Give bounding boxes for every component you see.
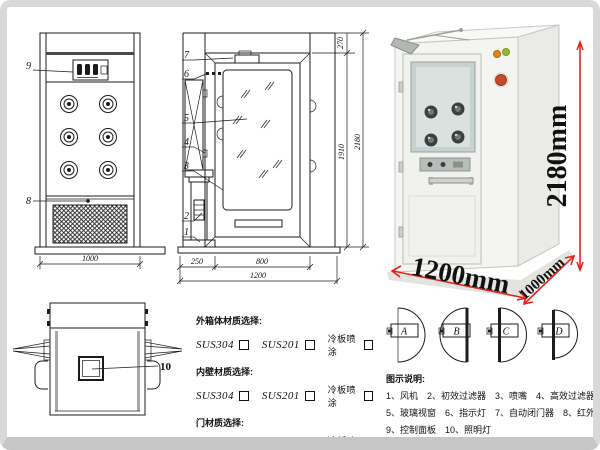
fan-section: [185, 80, 207, 170]
door-option-label: D: [554, 327, 563, 338]
door-option-label: B: [453, 327, 459, 338]
spec-sheet: 9 8 1000: [0, 0, 600, 450]
front-view-drawing: 9 8 1000: [22, 28, 182, 276]
checkbox[interactable]: [364, 442, 373, 450]
legend-item: 4、高效过滤器: [536, 389, 595, 402]
header-strip: [46, 52, 134, 55]
material-option-label: 冷板喷涂: [328, 434, 360, 450]
door-option-label: C: [503, 327, 510, 338]
wall-section: [137, 331, 140, 411]
material-option-label: SUS304: [196, 339, 234, 351]
dimension-widths: 250 800 1200: [177, 256, 340, 284]
glass-hatching: [233, 82, 282, 178]
checkbox[interactable]: [305, 442, 315, 450]
dimension-label: 2180: [353, 134, 362, 150]
side-wing-right: [145, 340, 182, 360]
return-grille: [53, 205, 127, 243]
checkbox[interactable]: [364, 340, 373, 350]
control-panel: [73, 60, 108, 80]
hinge: [399, 227, 403, 237]
hinge: [399, 162, 403, 172]
side-wing-left: [13, 340, 50, 360]
callout-label: 6: [184, 69, 189, 80]
top-view-drawing: 10: [8, 295, 176, 445]
door: [205, 51, 316, 247]
dimension-label: 1000: [82, 254, 98, 263]
material-option-label: SUS304: [196, 441, 234, 450]
legend-item: 8、红外线感应器: [563, 406, 600, 419]
material-group-title: 门材质选择:: [196, 416, 386, 429]
checkbox[interactable]: [239, 340, 249, 350]
orange-light: [494, 51, 501, 58]
callout-label: 8: [26, 196, 31, 207]
material-selection: 外箱体材质选择: SUS304 SUS201 冷板喷涂 内壁材质选择: SUS3…: [196, 314, 386, 450]
dimension-width: 1000: [37, 254, 143, 269]
material-options-row: SUS304 SUS201 冷板喷涂: [196, 434, 386, 450]
dimension-heights: 270 1910 2180: [312, 30, 369, 250]
material-group-title: 外箱体材质选择:: [196, 314, 386, 327]
cabinet-3d: [391, 25, 559, 272]
legend: 图示说明: 1、风机 2、初效过滤器 3、喷嘴 4、高效过滤器 5、玻璃视窗 6…: [386, 372, 596, 440]
material-option-label: 冷板喷涂: [328, 332, 360, 358]
door-option-d: D: [536, 304, 578, 366]
wall-section: [55, 331, 58, 411]
material-option-label: SUS201: [262, 441, 300, 450]
glass-window: [223, 70, 292, 210]
door-option-a: A: [386, 304, 428, 366]
callout-label: 4: [184, 137, 189, 148]
legend-line: 5、玻璃视窗 6、指示灯 7、自动闭门器 8、红外线感应器: [386, 406, 596, 419]
material-option-label: SUS201: [262, 390, 300, 402]
dimension-label: 270: [336, 37, 345, 49]
legend-title: 图示说明:: [386, 372, 596, 385]
door-handle-right: [147, 361, 160, 389]
checkbox[interactable]: [239, 442, 249, 450]
callout-control-panel: 9: [26, 61, 73, 72]
base: [35, 247, 165, 254]
door-handle: [235, 220, 282, 227]
product-photo: 2180mm 1200mm 1000mm: [373, 12, 590, 304]
door-handle-left: [35, 361, 48, 389]
hinge: [399, 82, 403, 92]
door-swing-options: A B C D: [386, 304, 578, 366]
material-options-row: SUS304 SUS201 冷板喷涂: [196, 332, 386, 358]
callout-label: 5: [184, 113, 189, 124]
legend-item: 7、自动闭门器: [495, 406, 554, 419]
material-option-label: SUS201: [262, 339, 300, 351]
dimension-label: 1910: [337, 144, 346, 160]
legend-item: 2、初效过滤器: [427, 389, 486, 402]
checkbox[interactable]: [364, 391, 373, 401]
dimension-label: 800: [256, 257, 268, 266]
green-light: [503, 49, 510, 56]
material-option-label: 冷板喷涂: [328, 383, 360, 409]
legend-item: 10、照明灯: [445, 423, 491, 436]
door-option-label: A: [400, 327, 408, 338]
dimension-label: 1200: [250, 271, 266, 280]
indicator-lights: [206, 72, 221, 75]
callout-label: 2: [184, 211, 189, 222]
checkbox[interactable]: [305, 391, 315, 401]
door-nozzles: [217, 96, 316, 172]
door-handle: [429, 178, 473, 183]
legend-line: 1、风机 2、初效过滤器 3、喷嘴 4、高效过滤器: [386, 389, 596, 402]
material-option-label: SUS304: [196, 390, 234, 402]
legend-item: 6、指示灯: [445, 406, 486, 419]
callout-label: 7: [184, 50, 190, 61]
callout-label: 9: [26, 61, 31, 72]
checkbox[interactable]: [305, 340, 315, 350]
legend-item: 3、喷嘴: [495, 389, 527, 402]
checkbox[interactable]: [239, 391, 249, 401]
emergency-button: [496, 75, 507, 86]
legend-item: 5、玻璃视窗: [386, 406, 436, 419]
material-group-title: 内壁材质选择:: [196, 365, 386, 378]
door-option-c: C: [486, 304, 528, 366]
legend-item: 9、控制面板: [386, 423, 436, 436]
callout-label: 1: [184, 227, 189, 238]
nozzles: [61, 96, 117, 179]
dimension-label: 250: [191, 257, 203, 266]
legend-line: 9、控制面板 10、照明灯: [386, 423, 596, 436]
side-view-drawing: 7 6 5 4 3 2 1 270 1910 218: [175, 20, 375, 288]
legend-item: 1、风机: [386, 389, 418, 402]
material-options-row: SUS304 SUS201 冷板喷涂: [196, 383, 386, 409]
callout-label: 10: [160, 361, 172, 373]
callout-label: 3: [183, 161, 189, 172]
height-dimension-label: 2180mm: [542, 105, 573, 208]
door-option-b: B: [436, 304, 478, 366]
